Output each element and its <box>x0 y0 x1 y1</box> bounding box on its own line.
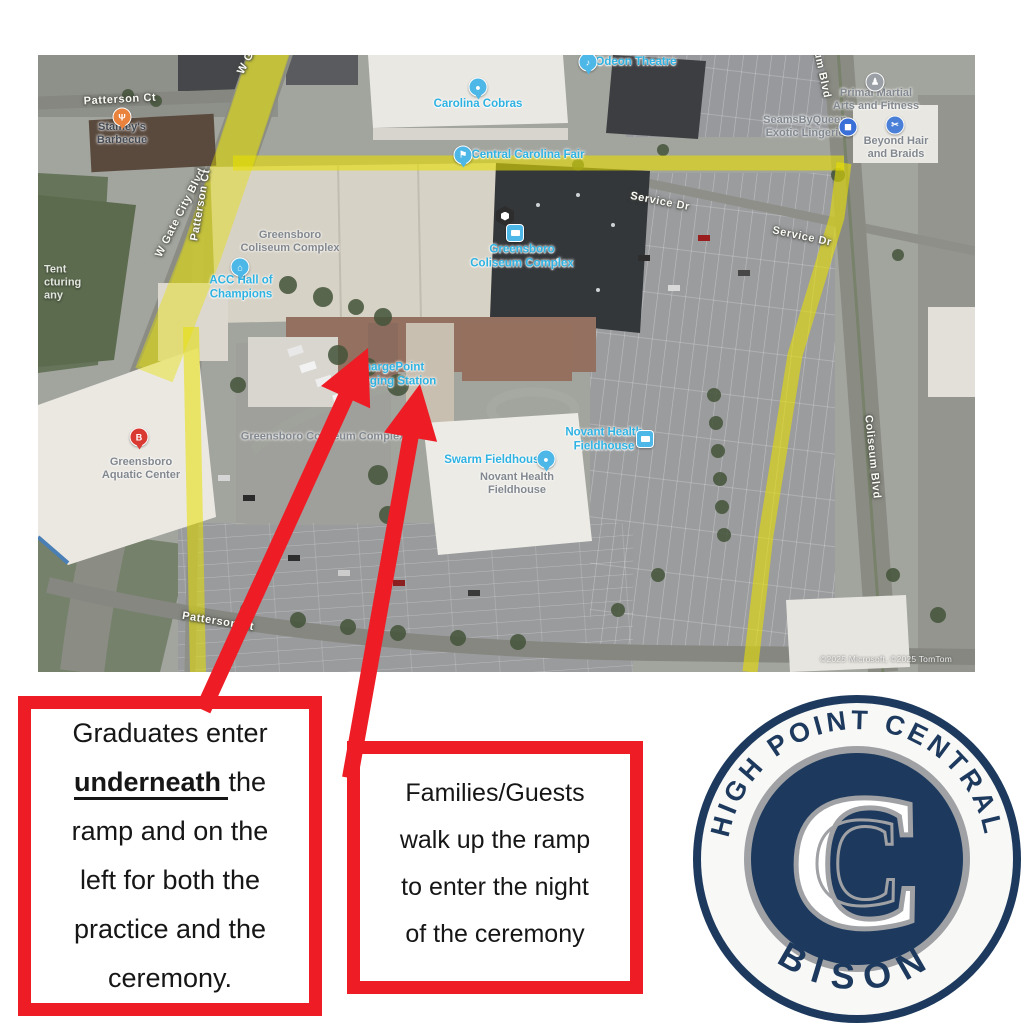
stadium-hexagon-pin <box>496 206 514 226</box>
letter-b-pin: B <box>130 428 149 447</box>
map-label: Novant Health Fieldhouse <box>565 426 642 453</box>
graduates-line-4: left for both the <box>31 856 309 905</box>
families-line-4: of the ceremony <box>360 911 630 958</box>
map-label: Coliseum Blvd <box>803 55 833 100</box>
map-label: Carolina Cobras <box>434 98 523 112</box>
map-label: Service Dr <box>771 224 833 249</box>
graduates-callout-box: Graduates enter underneath the ramp and … <box>18 696 322 1016</box>
graduates-line-2-rest: the <box>228 767 266 797</box>
map-label: Novant Health Fieldhouse <box>480 471 554 497</box>
theatre-pin: ♪ <box>579 55 598 72</box>
fair-pin: ⚑ <box>454 146 473 165</box>
graduates-line-6: ceremony. <box>31 954 309 1003</box>
map-label: Patterson Ct <box>181 610 255 634</box>
graduates-line-3: ramp and on the <box>31 807 309 856</box>
map-label: Greensboro Coliseum Complex <box>240 229 339 255</box>
martial-arts-pin: ♟ <box>866 73 885 92</box>
map-attribution: ©2025 Microsoft, ©2025 TomTom <box>820 654 952 664</box>
satellite-map: Patterson CtW Gate City BlvdW Gate City … <box>38 55 975 672</box>
shopping-pin: ◼ <box>839 118 858 137</box>
families-callout-box: Families/Guests walk up the ramp to ente… <box>347 741 643 994</box>
map-label: Beyond Hair and Braids <box>864 135 929 161</box>
map-label: Service Dr <box>629 190 691 214</box>
graduates-line-5: practice and the <box>31 905 309 954</box>
bus-stop-pin <box>506 224 524 242</box>
flyer-canvas: Patterson CtW Gate City BlvdW Gate City … <box>0 0 1024 1024</box>
graduates-line-1: Graduates enter <box>31 709 309 758</box>
families-line-2: walk up the ramp <box>360 817 630 864</box>
map-label: Central Carolina Fair <box>471 149 584 163</box>
logo-letter-c-inner-outline: C <box>811 791 903 933</box>
graduates-line-2: underneath the <box>31 758 309 807</box>
map-labels-layer: Patterson CtW Gate City BlvdW Gate City … <box>38 55 975 672</box>
bus-stop-pin <box>636 430 654 448</box>
stadium-pin: ● <box>537 450 556 469</box>
map-label: Tent cturing any <box>44 264 81 303</box>
map-label: W Gate City Blvd <box>235 55 291 77</box>
map-label: W Gate City Blvd <box>153 166 209 259</box>
museum-pin: ⌂ <box>231 258 250 277</box>
restaurant-pin: Ψ <box>113 108 132 127</box>
map-label: Odeon Theatre <box>595 56 676 70</box>
map-label: Patterson Ct <box>188 168 213 242</box>
map-label: Greensboro Coliseum Complex <box>241 431 405 444</box>
map-label: Patterson Ct <box>83 92 156 109</box>
underneath-emphasis: underneath <box>74 767 229 800</box>
map-label: Swarm Fieldhouse <box>444 454 546 468</box>
map-label: Greensboro Aquatic Center <box>102 456 180 482</box>
families-line-3: to enter the night <box>360 864 630 911</box>
school-logo: HIGH POINT CENTRAL BISON C C <box>692 694 1022 1024</box>
map-label: SeamsByQueen Exotic Lingerie <box>763 114 847 140</box>
map-label: Coliseum Blvd <box>861 414 883 499</box>
map-label: Greensboro Coliseum Complex <box>470 243 574 270</box>
map-label: ChargePoint Charging Station <box>344 361 437 388</box>
sports-pin: ● <box>469 78 488 97</box>
families-line-1: Families/Guests <box>360 770 630 817</box>
scissors-pin: ✂ <box>886 116 905 135</box>
